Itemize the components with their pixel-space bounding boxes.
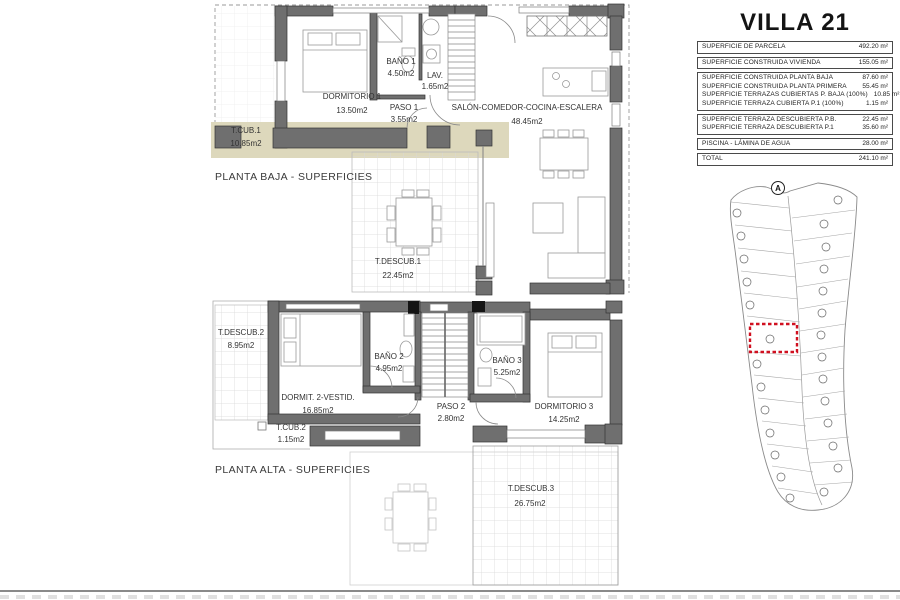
room-area-label: 26.75m2 (514, 499, 546, 508)
table-row: TOTAL 241.10 m² (702, 155, 888, 164)
terrace-grid (215, 305, 268, 420)
table-row-label: SUPERFICIE DE PARCELA (702, 43, 786, 52)
washer-icon (423, 45, 440, 63)
table-row-value: 28.00 m² (862, 140, 888, 149)
room-area-label: 14.25m2 (548, 415, 580, 424)
villa-title: VILLA 21 (697, 10, 893, 35)
site-plan: A (730, 182, 857, 511)
coffee-table-icon (533, 203, 563, 233)
table-group: PISCINA - LÁMINA DE AGUA 28.00 m² (697, 138, 893, 151)
room-name-label: T.DESCUB.2 (218, 328, 265, 337)
table-row-label: SUPERFICIE CONSTRUIDA PLANTA PRIMERA (702, 83, 847, 92)
room-area-label: 5.25m2 (494, 368, 521, 377)
room-area-label: 3.55m2 (391, 115, 418, 124)
table-row-value: 35.60 m² (862, 124, 888, 133)
room-name-label: SALÓN-COMEDOR-COCINA-ESCALERA (452, 103, 603, 112)
kitchen-island-icon (543, 68, 608, 96)
table-group: SUPERFICIE DE PARCELA 492.20 m² (697, 41, 893, 54)
table-row-label: SUPERFICIE CONSTRUIDA PLANTA BAJA (702, 74, 833, 83)
room-area-label: 4.50m2 (388, 69, 415, 78)
district-marker-label: A (775, 184, 781, 193)
room-area-label: 13.50m2 (336, 106, 368, 115)
room-name-label: T.CUB.2 (276, 423, 306, 432)
planta-alta-plan (213, 301, 622, 585)
room-name-label: PASO 1 (390, 103, 419, 112)
room-area-label: 22.45m2 (382, 271, 414, 280)
plan-caption: PLANTA ALTA - SUPERFICIES (215, 464, 370, 476)
stairs-icon (422, 313, 468, 397)
table-row-value: 1.15 m² (866, 100, 888, 109)
table-row: SUPERFICIE CONSTRUIDA PLANTA BAJA 87.60 … (702, 74, 888, 83)
room-name-label: PASO 2 (437, 402, 466, 411)
sink-icon (478, 368, 491, 386)
room-name-label: T.CUB.1 (231, 126, 261, 135)
bed-icon (281, 314, 361, 366)
table-row-value: 87.60 m² (862, 74, 888, 83)
table-row-value: 55.45 m² (862, 83, 888, 92)
room-name-label: DORMIT. 2-VESTID. (281, 393, 354, 402)
table-group: SUPERFICIE CONSTRUIDA PLANTA BAJA 87.60 … (697, 72, 893, 110)
bed-icon (548, 333, 602, 397)
surface-area-table: SUPERFICIE DE PARCELA 492.20 m² SUPERFIC… (697, 41, 893, 166)
bed-icon (303, 30, 367, 92)
table-group: SUPERFICIE CONSTRUIDA VIVIENDA 155.05 m² (697, 57, 893, 70)
room-name-label: T.DESCUB.1 (375, 257, 422, 266)
table-row-value: 22.45 m² (862, 116, 888, 125)
table-row-label: SUPERFICIE TERRAZA DESCUBIERTA P.B. (702, 116, 837, 125)
table-row-label: SUPERFICIE TERRAZAS CUBIERTAS P. BAJA (1… (702, 91, 868, 100)
stairs-icon (448, 14, 475, 100)
terrace-grid (473, 446, 618, 585)
table-row-value: 155.05 m² (859, 59, 888, 68)
sink-icon (403, 366, 414, 382)
table-row-label: SUPERFICIE TERRAZA DESCUBIERTA P.1 (702, 124, 834, 133)
room-area-label: 8.95m2 (228, 341, 255, 350)
table-row: SUPERFICIE TERRAZA DESCUBIERTA P.B. 22.4… (702, 116, 888, 125)
room-area-label: 1.65m2 (422, 82, 449, 91)
sink-icon (423, 19, 439, 35)
plan-caption: PLANTA BAJA - SUPERFICIES (215, 171, 372, 183)
dining-table-icon (540, 130, 588, 178)
room-area-label: 1.15m2 (278, 435, 305, 444)
table-row-label: TOTAL (702, 155, 723, 164)
planta-baja-plan (211, 4, 629, 295)
room-area-label: 16.85m2 (302, 406, 334, 415)
room-name-label: BAÑO 2 (374, 352, 404, 361)
sheet-edge (0, 591, 900, 597)
table-row-label: SUPERFICIE TERRAZA CUBIERTA P.1 (100%) (702, 100, 844, 109)
terrace-marker (258, 422, 266, 430)
table-row: PISCINA - LÁMINA DE AGUA 28.00 m² (702, 140, 888, 149)
room-name-label: DORMITORIO 1 (323, 92, 382, 101)
room-area-label: 10.85m2 (230, 139, 262, 148)
room-name-label: DORMITORIO 3 (535, 402, 594, 411)
table-row-value: 10.85 m² (874, 91, 900, 100)
room-name-label: BAÑO 3 (492, 356, 522, 365)
glass-wall (483, 146, 494, 277)
room-name-label: LAV. (427, 71, 443, 80)
drawing-sheet: A DORMITORIO 1 13.50m2 BAÑO 1 4.50m2 LAV… (0, 0, 900, 600)
table-row-label: SUPERFICIE CONSTRUIDA VIVIENDA (702, 59, 821, 68)
shower-icon (378, 16, 402, 42)
sofa-icon (533, 197, 605, 278)
room-area-label: 48.45m2 (511, 117, 543, 126)
table-row-label: PISCINA - LÁMINA DE AGUA (702, 140, 790, 149)
summary-panel: VILLA 21 SUPERFICIE DE PARCELA 492.20 m²… (697, 10, 893, 169)
room-area-label: 2.80m2 (438, 414, 465, 423)
table-group: SUPERFICIE TERRAZA DESCUBIERTA P.B. 22.4… (697, 114, 893, 135)
ghost-furniture (385, 484, 436, 551)
table-row: SUPERFICIE TERRAZAS CUBIERTAS P. BAJA (1… (702, 91, 888, 100)
table-row-value: 241.10 m² (859, 155, 888, 164)
table-row: SUPERFICIE CONSTRUIDA PLANTA PRIMERA 55.… (702, 83, 888, 92)
table-row: SUPERFICIE TERRAZA CUBIERTA P.1 (100%) 1… (702, 100, 888, 109)
room-area-label: 4.95m2 (376, 364, 403, 373)
room-name-label: BAÑO 1 (386, 57, 416, 66)
table-row: SUPERFICIE TERRAZA DESCUBIERTA P.1 35.60… (702, 124, 888, 133)
toilet-icon (480, 348, 492, 362)
kitchen-counter-icon (527, 16, 607, 36)
room-name-label: T.DESCUB.3 (508, 484, 555, 493)
table-row: SUPERFICIE DE PARCELA 492.20 m² (702, 43, 888, 52)
district-marker: A (772, 182, 785, 195)
table-group: TOTAL 241.10 m² (697, 153, 893, 166)
table-row: SUPERFICIE CONSTRUIDA VIVIENDA 155.05 m² (702, 59, 888, 68)
table-row-value: 492.20 m² (859, 43, 888, 52)
